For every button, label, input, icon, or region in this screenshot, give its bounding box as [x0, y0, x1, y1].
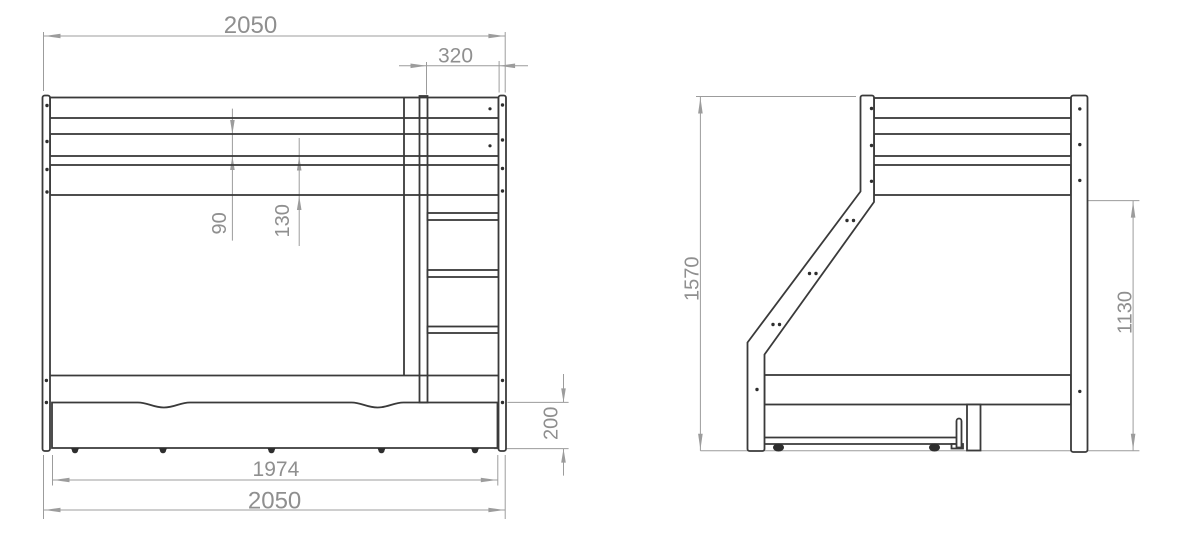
svg-text:1570: 1570 — [682, 257, 704, 302]
svg-text:200: 200 — [541, 407, 563, 440]
svg-text:2050: 2050 — [224, 12, 277, 39]
svg-text:1974: 1974 — [253, 458, 300, 481]
svg-text:130: 130 — [272, 204, 294, 237]
svg-text:1130: 1130 — [1115, 291, 1137, 334]
svg-text:90: 90 — [209, 212, 231, 234]
svg-text:320: 320 — [438, 45, 473, 68]
svg-text:2050: 2050 — [248, 488, 301, 515]
